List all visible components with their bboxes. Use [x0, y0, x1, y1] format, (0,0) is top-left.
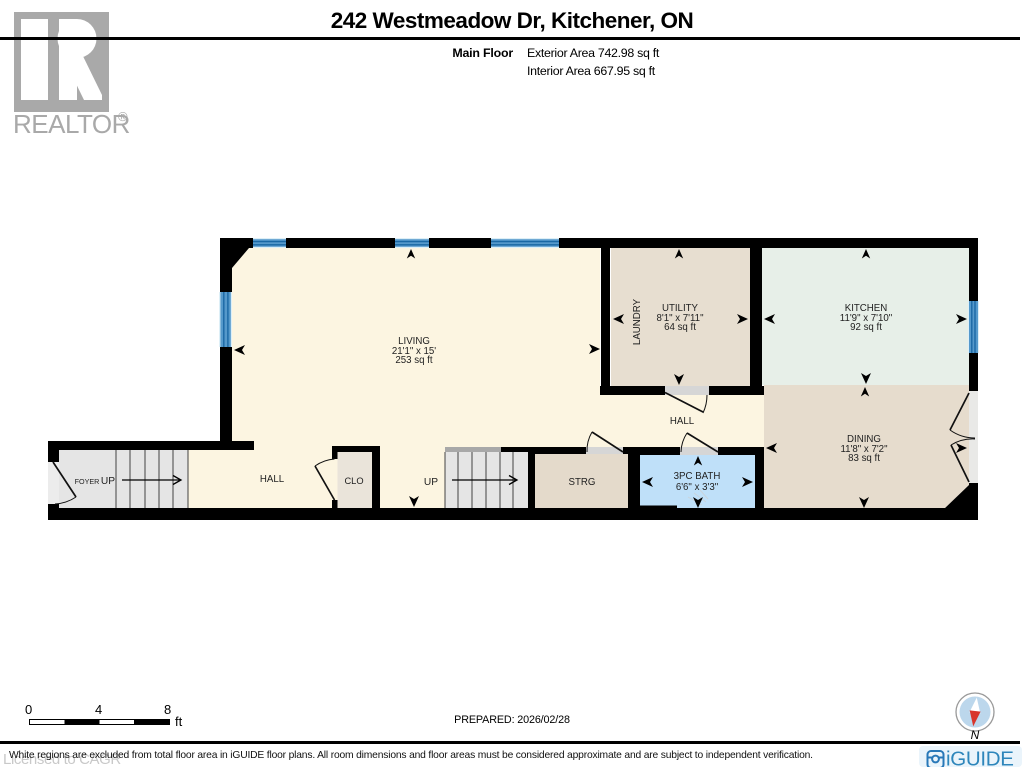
svg-text:HALL: HALL: [260, 474, 285, 485]
svg-text:iGUIDE: iGUIDE: [946, 748, 1014, 768]
svg-text:FOYER: FOYER: [75, 477, 100, 486]
svg-text:253 sq ft: 253 sq ft: [395, 355, 432, 366]
svg-text:3PC BATH: 3PC BATH: [674, 471, 721, 482]
svg-text:STRG: STRG: [569, 477, 596, 488]
svg-text:N: N: [971, 728, 980, 742]
svg-text:CLO: CLO: [344, 476, 363, 486]
svg-text:UP: UP: [424, 477, 438, 488]
svg-text:92 sq ft: 92 sq ft: [850, 322, 882, 333]
svg-text:LAUNDRY: LAUNDRY: [632, 298, 643, 345]
svg-text:HALL: HALL: [670, 416, 695, 427]
svg-text:83 sq ft: 83 sq ft: [848, 453, 880, 464]
svg-text:64 sq ft: 64 sq ft: [664, 322, 696, 333]
svg-text:UP: UP: [101, 476, 115, 487]
svg-text:6'6" x 3'3": 6'6" x 3'3": [676, 482, 719, 493]
